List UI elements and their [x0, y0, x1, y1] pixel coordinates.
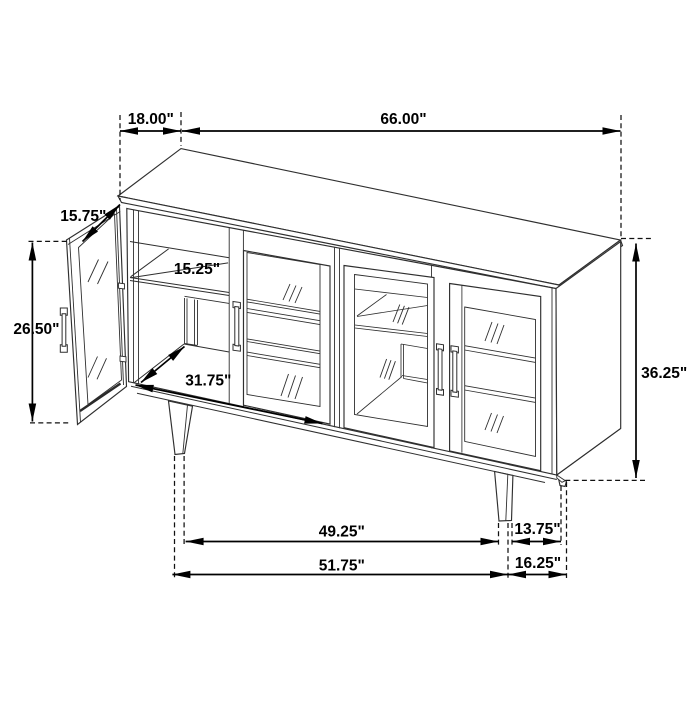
- svg-text:66.00": 66.00": [380, 111, 426, 128]
- svg-text:51.75": 51.75": [319, 558, 365, 575]
- svg-text:16.25": 16.25": [515, 555, 561, 572]
- svg-text:15.25": 15.25": [174, 261, 220, 278]
- svg-text:15.75": 15.75": [60, 208, 106, 225]
- svg-text:18.00": 18.00": [128, 111, 174, 128]
- svg-text:26.50": 26.50": [13, 321, 59, 338]
- svg-text:49.25": 49.25": [319, 524, 365, 541]
- svg-text:36.25": 36.25": [641, 365, 687, 382]
- svg-text:31.75": 31.75": [185, 373, 231, 390]
- svg-text:13.75": 13.75": [514, 521, 560, 538]
